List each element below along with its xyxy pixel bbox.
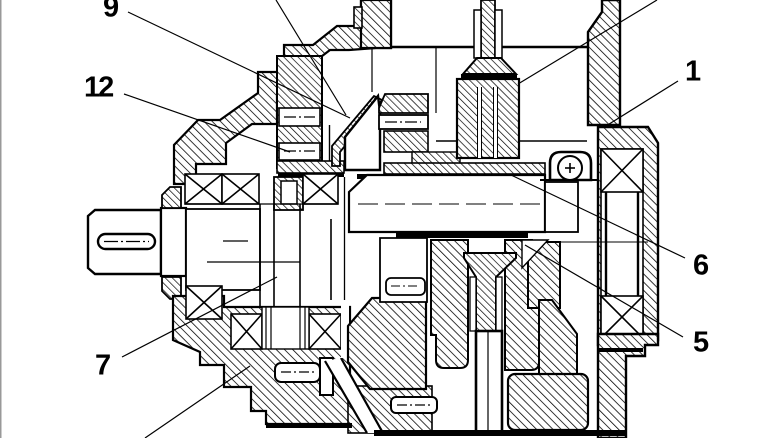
svg-text:6: 6: [693, 250, 709, 282]
svg-text:1: 1: [685, 56, 701, 88]
svg-text:9: 9: [103, 0, 119, 24]
svg-text:5: 5: [693, 327, 709, 359]
svg-text:12: 12: [84, 72, 113, 104]
svg-text:7: 7: [95, 350, 111, 382]
